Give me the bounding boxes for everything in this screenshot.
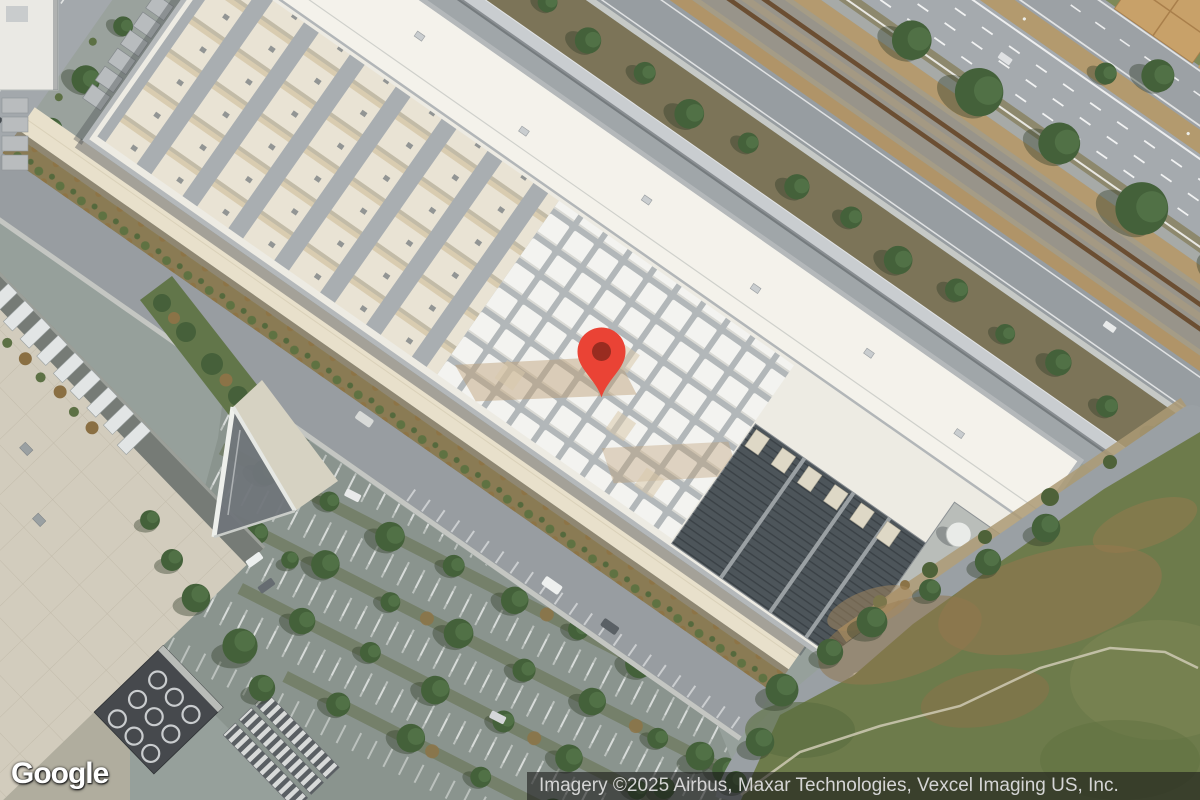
pin-inner-dot bbox=[592, 342, 611, 361]
map-canvas[interactable]: Google Imagery ©2025 Airbus, Maxar Techn… bbox=[0, 0, 1200, 800]
satellite-imagery bbox=[0, 0, 1200, 800]
attribution-text: Imagery ©2025 Airbus, Maxar Technologies… bbox=[539, 775, 1119, 796]
attribution-bar: Imagery ©2025 Airbus, Maxar Technologies… bbox=[527, 772, 1200, 800]
google-logo[interactable]: Google bbox=[11, 757, 108, 791]
